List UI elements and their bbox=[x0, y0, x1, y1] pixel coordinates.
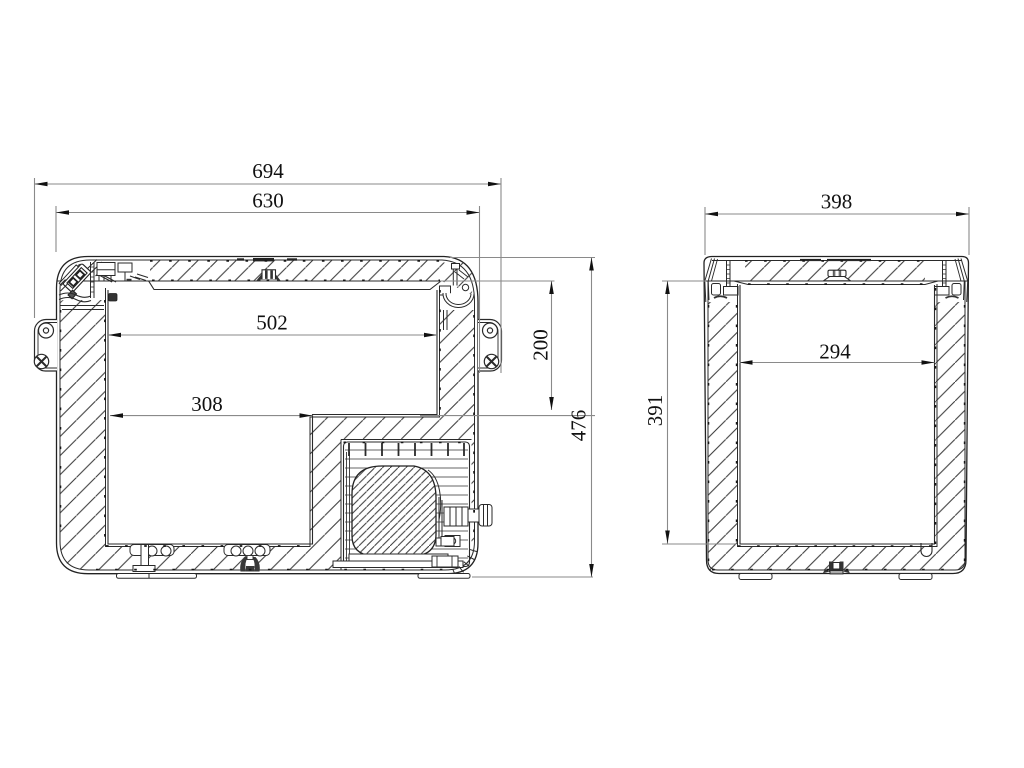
svg-text:694: 694 bbox=[252, 159, 284, 183]
svg-text:476: 476 bbox=[567, 410, 591, 442]
svg-text:294: 294 bbox=[819, 340, 851, 364]
svg-text:398: 398 bbox=[821, 190, 853, 214]
svg-text:630: 630 bbox=[252, 189, 284, 213]
svg-text:502: 502 bbox=[256, 311, 288, 335]
svg-text:308: 308 bbox=[191, 392, 223, 416]
svg-text:391: 391 bbox=[643, 395, 667, 427]
svg-text:200: 200 bbox=[529, 329, 553, 361]
